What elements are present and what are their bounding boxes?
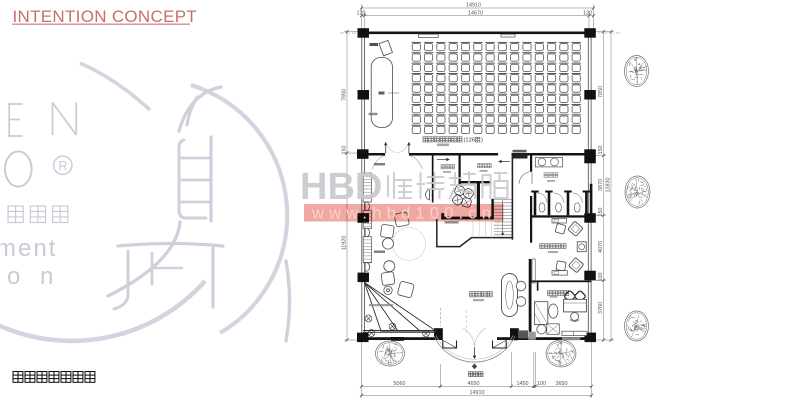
svg-text:www.hbd100.cn: www.hbd100.cn <box>311 205 496 223</box>
svg-text:11920: 11920 <box>342 236 348 251</box>
svg-text:1450: 1450 <box>517 381 529 387</box>
svg-text:ment: ment <box>0 235 57 262</box>
svg-text:7850: 7850 <box>342 89 348 101</box>
svg-text:HBD: HBD <box>300 166 382 208</box>
svg-text:R: R <box>59 159 68 173</box>
svg-text:3870: 3870 <box>598 179 604 191</box>
svg-text:14910: 14910 <box>470 390 485 396</box>
svg-text:n: n <box>40 263 53 290</box>
svg-text:(126: (126 <box>464 138 476 144</box>
svg-text:13830: 13830 <box>606 178 612 193</box>
svg-text:5060: 5060 <box>394 381 406 387</box>
svg-text:o: o <box>7 263 20 290</box>
svg-text:3760: 3760 <box>598 302 604 314</box>
svg-text:120: 120 <box>357 10 366 16</box>
svg-text:4070: 4070 <box>598 241 604 253</box>
svg-text:INTENTION CONCEPT: INTENTION CONCEPT <box>13 7 198 26</box>
svg-text:14670: 14670 <box>468 10 483 16</box>
svg-text:150: 150 <box>598 146 604 155</box>
svg-text:100: 100 <box>537 381 546 387</box>
svg-text:150: 150 <box>342 146 348 155</box>
svg-text:4650: 4650 <box>468 381 480 387</box>
svg-text:150: 150 <box>598 208 604 217</box>
svg-text:7850: 7850 <box>598 86 604 98</box>
svg-text:100: 100 <box>598 273 604 282</box>
svg-text:): ) <box>481 138 483 144</box>
svg-text:120: 120 <box>583 10 592 16</box>
svg-text:14910: 14910 <box>466 3 481 9</box>
svg-text:3650: 3650 <box>556 381 568 387</box>
